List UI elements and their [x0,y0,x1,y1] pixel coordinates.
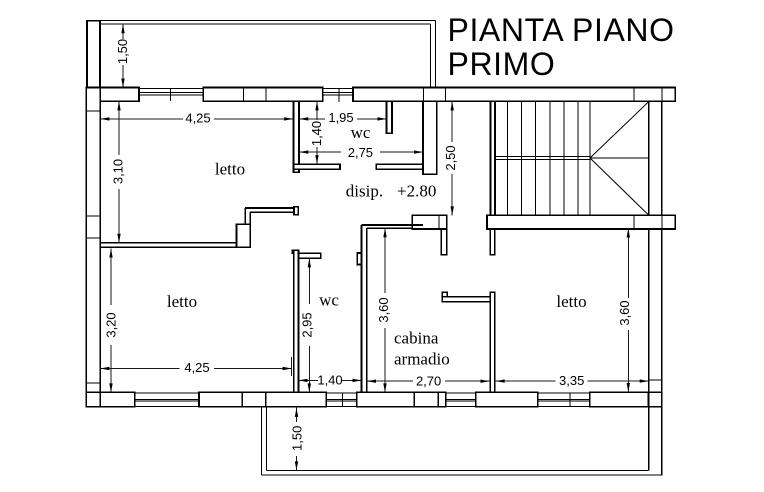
svg-text:wc: wc [319,291,339,310]
svg-text:armadio: armadio [394,350,450,369]
svg-text:1,50: 1,50 [115,39,130,64]
svg-text:3,60: 3,60 [376,297,391,322]
svg-text:1,40: 1,40 [309,121,324,146]
svg-text:PRIMO: PRIMO [448,46,556,82]
svg-text:2,50: 2,50 [443,145,458,170]
svg-text:1,40: 1,40 [317,373,342,388]
svg-text:1,95: 1,95 [328,110,353,125]
svg-text:+2.80: +2.80 [397,182,436,201]
svg-text:4,25: 4,25 [185,111,210,126]
svg-text:3,20: 3,20 [103,312,118,337]
svg-text:wc: wc [351,123,371,142]
svg-text:cabina: cabina [394,329,439,348]
svg-text:letto: letto [167,292,197,311]
svg-text:1,50: 1,50 [290,426,305,451]
svg-text:2,70: 2,70 [416,373,441,388]
svg-text:3,35: 3,35 [559,373,584,388]
svg-text:2,95: 2,95 [300,312,315,337]
svg-text:3,10: 3,10 [110,159,125,184]
svg-text:4,25: 4,25 [184,360,209,375]
svg-text:disip.: disip. [346,182,383,201]
svg-text:letto: letto [215,160,245,179]
svg-text:PIANTA PIANO: PIANTA PIANO [448,12,675,48]
svg-text:letto: letto [556,292,586,311]
svg-text:3,60: 3,60 [617,300,632,325]
svg-text:2,75: 2,75 [348,145,373,160]
